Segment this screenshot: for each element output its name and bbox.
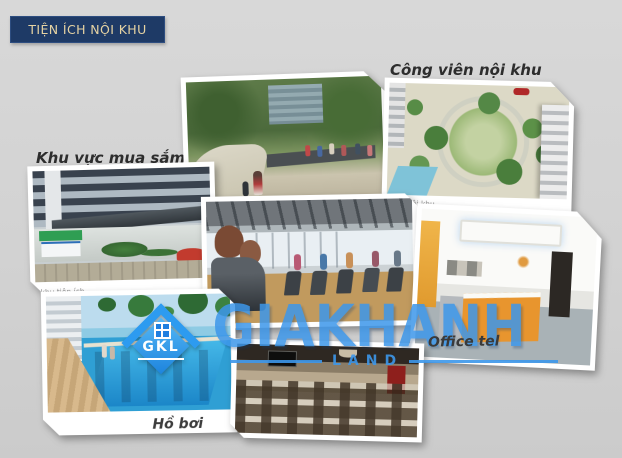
doorway-shape [549, 251, 573, 317]
shopping-photo-image [32, 167, 212, 283]
watermark-left-line [230, 360, 322, 363]
pool-photo-caption: Hồ bơi [152, 416, 203, 433]
people-shapes [305, 145, 310, 156]
tables-chairs-shapes [235, 379, 418, 437]
page-title-banner: TIỆN ÍCH NỘI KHU [10, 16, 165, 43]
wall-logo-shape [516, 255, 531, 269]
ceiling-cove-light-shape [459, 219, 563, 246]
watermark-division-text: LAND [332, 353, 403, 369]
pool-sliver-shape [387, 166, 438, 196]
treadmill-shapes [284, 271, 302, 295]
right-building-shape [540, 105, 569, 200]
red-car-shape [514, 88, 530, 95]
walking-woman-shape [253, 171, 263, 195]
logo-window-icon [154, 322, 171, 339]
ceiling-beams-shape [206, 198, 412, 231]
shopping-photo: khu tiện ích [27, 162, 217, 300]
left-building-shape [388, 83, 406, 148]
green-sign-shape [39, 230, 82, 241]
slide-canvas: TIỆN ÍCH NỘI KHU Công viên nội khu Khu v… [0, 0, 622, 458]
orange-accent-wall-shape [417, 220, 441, 307]
logo-initials-text: GKL [112, 339, 210, 355]
people-on-treadmills-shapes [293, 254, 300, 270]
wall-shelf-shape [447, 260, 483, 277]
white-sign-shape [41, 241, 80, 257]
pavement-shape [35, 260, 212, 282]
label-cong-vien-noi-khu: Công viên nội khu [390, 61, 542, 79]
watermark-land-row: LAND [230, 354, 558, 368]
park-photo-image [186, 76, 385, 211]
tree-blobs-shape [407, 99, 423, 115]
gkl-logo: GKL [112, 300, 210, 384]
walking-child-shape [242, 182, 249, 197]
aerial-park-photo-image [387, 83, 570, 200]
watermark-right-line [409, 360, 558, 363]
label-office-tel: Office tel [428, 333, 500, 350]
page-title: TIỆN ÍCH NỘI KHU [28, 22, 146, 37]
logo-underline [138, 358, 184, 360]
background-building-shape [268, 84, 324, 124]
gym-photo-image [206, 198, 414, 324]
shopping-photo-frame: khu tiện ích [27, 162, 217, 300]
person-shape [102, 344, 107, 357]
circular-garden-shape [436, 95, 531, 188]
